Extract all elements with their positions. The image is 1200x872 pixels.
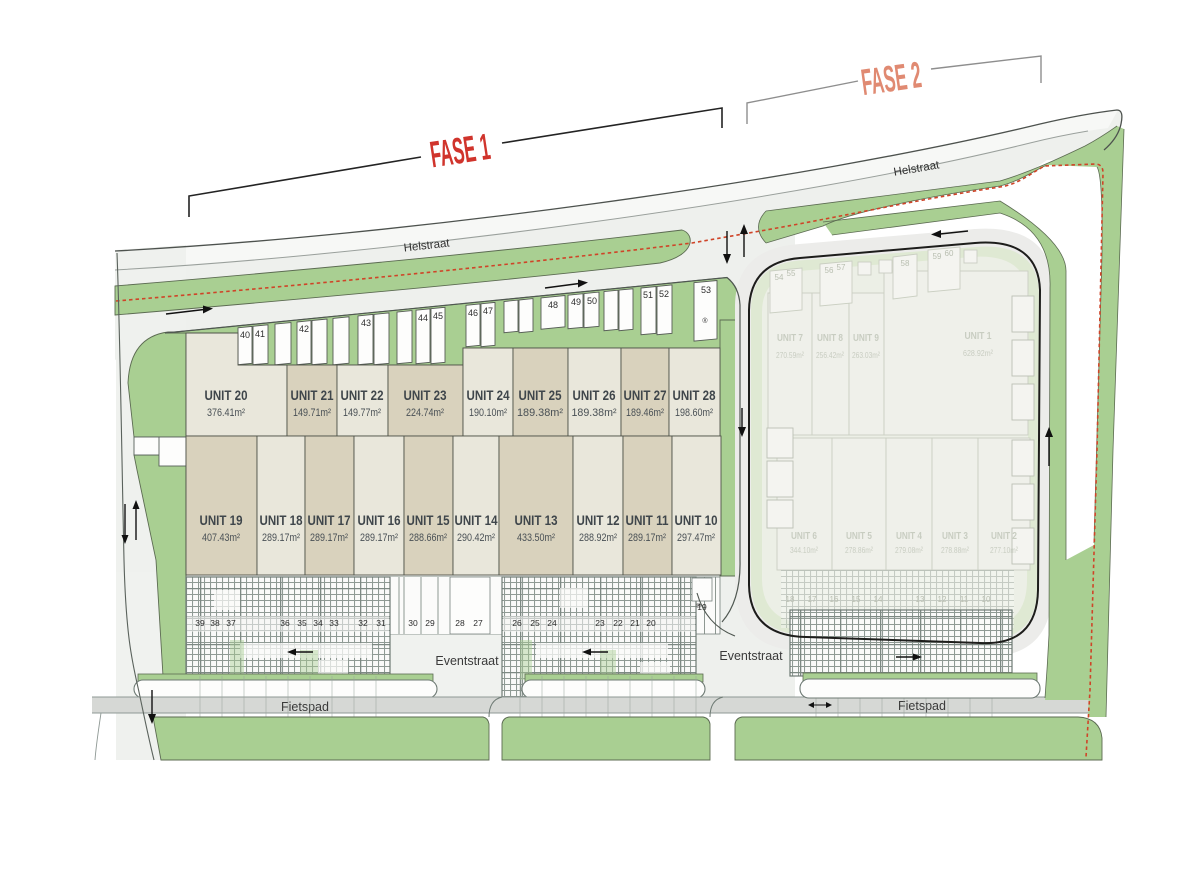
svg-text:51: 51 [643,290,653,300]
svg-text:35: 35 [297,618,307,628]
svg-text:21: 21 [630,618,640,628]
svg-text:UNIT 12: UNIT 12 [577,512,620,528]
svg-text:11: 11 [960,595,969,604]
svg-text:UNIT 22: UNIT 22 [341,387,384,403]
svg-text:13: 13 [916,595,925,604]
svg-text:38: 38 [210,618,220,628]
svg-text:55: 55 [787,269,796,278]
svg-text:27: 27 [473,618,483,628]
svg-text:UNIT 1: UNIT 1 [965,331,992,342]
svg-text:43: 43 [361,318,371,328]
svg-text:277.10m²: 277.10m² [990,545,1018,555]
svg-text:59: 59 [933,252,942,261]
svg-text:289.17m²: 289.17m² [262,532,300,544]
svg-text:30: 30 [408,618,418,628]
svg-text:FASE 2: FASE 2 [859,55,924,104]
svg-text:UNIT 19: UNIT 19 [200,512,243,528]
svg-text:UNIT 25: UNIT 25 [519,387,562,403]
svg-text:Fietspad: Fietspad [898,699,946,713]
svg-text:33: 33 [329,618,339,628]
svg-text:52: 52 [659,289,669,299]
svg-text:53: 53 [701,285,711,295]
svg-text:Eventstraat: Eventstraat [435,654,499,668]
svg-text:UNIT 3: UNIT 3 [942,531,968,542]
svg-text:12: 12 [938,595,947,604]
svg-text:29: 29 [425,618,435,628]
svg-text:288.66m²: 288.66m² [409,532,447,544]
svg-text:278.86m²: 278.86m² [845,545,873,555]
svg-text:17: 17 [808,595,817,604]
svg-text:UNIT 28: UNIT 28 [673,387,716,403]
svg-text:46: 46 [468,308,478,318]
svg-text:289.17m²: 289.17m² [310,532,348,544]
svg-text:407.43m²: 407.43m² [202,532,240,544]
svg-text:49: 49 [571,297,581,307]
svg-text:36: 36 [280,618,290,628]
svg-text:56: 56 [825,266,834,275]
svg-text:UNIT 8: UNIT 8 [817,333,843,344]
svg-text:433.50m²: 433.50m² [517,532,555,544]
svg-text:UNIT 17: UNIT 17 [308,512,351,528]
svg-text:628.92m²: 628.92m² [963,348,993,358]
svg-text:50: 50 [587,296,597,306]
svg-text:263.03m²: 263.03m² [852,350,880,360]
svg-text:25: 25 [530,618,540,628]
svg-text:UNIT 11: UNIT 11 [626,512,669,528]
svg-text:UNIT 10: UNIT 10 [675,512,718,528]
svg-text:37: 37 [226,618,236,628]
svg-text:149.71m²: 149.71m² [293,407,331,419]
svg-text:288.92m²: 288.92m² [579,532,617,544]
svg-text:23: 23 [595,618,605,628]
svg-text:26: 26 [512,618,522,628]
svg-text:279.08m²: 279.08m² [895,545,923,555]
svg-text:297.47m²: 297.47m² [677,532,715,544]
svg-text:UNIT 26: UNIT 26 [573,387,616,403]
svg-text:UNIT 6: UNIT 6 [791,531,817,542]
svg-text:UNIT 18: UNIT 18 [260,512,303,528]
svg-text:FASE 1: FASE 1 [428,127,493,176]
svg-text:15: 15 [852,595,861,604]
svg-text:60: 60 [945,249,954,258]
svg-text:UNIT 21: UNIT 21 [291,387,334,403]
svg-text:UNIT 15: UNIT 15 [407,512,450,528]
svg-text:UNIT 27: UNIT 27 [624,387,667,403]
svg-text:57: 57 [837,263,846,272]
svg-text:14: 14 [874,595,883,604]
svg-text:40: 40 [240,330,250,340]
svg-text:198.60m²: 198.60m² [675,407,713,419]
svg-text:UNIT 2: UNIT 2 [991,531,1017,542]
svg-text:190.10m²: 190.10m² [469,407,507,419]
svg-text:39: 39 [195,618,205,628]
svg-text:289.17m²: 289.17m² [628,532,666,544]
svg-text:290.42m²: 290.42m² [457,532,495,544]
svg-text:45: 45 [433,311,443,321]
svg-text:149.77m²: 149.77m² [343,407,381,419]
svg-text:®: ® [702,317,708,325]
svg-text:58: 58 [901,259,910,268]
svg-text:UNIT 24: UNIT 24 [467,387,510,403]
svg-text:32: 32 [358,618,368,628]
svg-text:24: 24 [547,618,557,628]
svg-text:54: 54 [775,273,784,282]
svg-text:278.88m²: 278.88m² [941,545,969,555]
svg-text:189.38m²: 189.38m² [517,407,563,419]
svg-text:UNIT 14: UNIT 14 [455,512,498,528]
svg-text:UNIT 5: UNIT 5 [846,531,872,542]
svg-text:Eventstraat: Eventstraat [719,649,783,663]
svg-text:UNIT 9: UNIT 9 [853,333,879,344]
svg-text:270.59m²: 270.59m² [776,350,804,360]
svg-text:47: 47 [483,306,493,316]
svg-text:42: 42 [299,324,309,334]
svg-text:256.42m²: 256.42m² [816,350,844,360]
svg-text:41: 41 [255,329,265,339]
svg-text:289.17m²: 289.17m² [360,532,398,544]
svg-text:UNIT 23: UNIT 23 [404,387,447,403]
svg-text:224.74m²: 224.74m² [406,407,444,419]
svg-text:189.38m²: 189.38m² [572,407,617,419]
svg-text:UNIT 20: UNIT 20 [205,387,248,403]
svg-text:16: 16 [830,595,839,604]
svg-text:28: 28 [455,618,465,628]
svg-text:UNIT 16: UNIT 16 [358,512,401,528]
svg-text:UNIT 4: UNIT 4 [896,531,922,542]
svg-text:376.41m²: 376.41m² [207,407,245,419]
svg-text:UNIT 13: UNIT 13 [515,512,558,528]
svg-text:34: 34 [313,618,323,628]
svg-text:189.46m²: 189.46m² [626,407,664,419]
svg-text:UNIT 7: UNIT 7 [777,333,803,344]
svg-text:22: 22 [613,618,623,628]
svg-text:10: 10 [982,595,991,604]
svg-text:31: 31 [376,618,386,628]
svg-text:44: 44 [418,313,428,323]
svg-text:344.10m²: 344.10m² [790,545,818,555]
svg-text:18: 18 [786,595,795,604]
svg-text:20: 20 [646,618,656,628]
svg-text:48: 48 [548,300,558,310]
